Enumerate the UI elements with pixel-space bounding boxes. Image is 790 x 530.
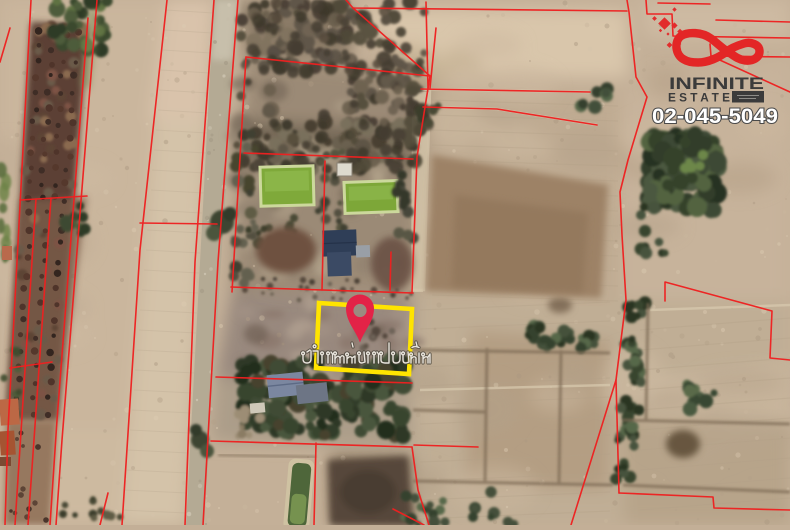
svg-text:INFINITE: INFINITE	[669, 75, 764, 93]
svg-text:02-045-5049: 02-045-5049	[652, 104, 778, 128]
svg-text:E S T A T E: E S T A T E	[668, 93, 730, 105]
